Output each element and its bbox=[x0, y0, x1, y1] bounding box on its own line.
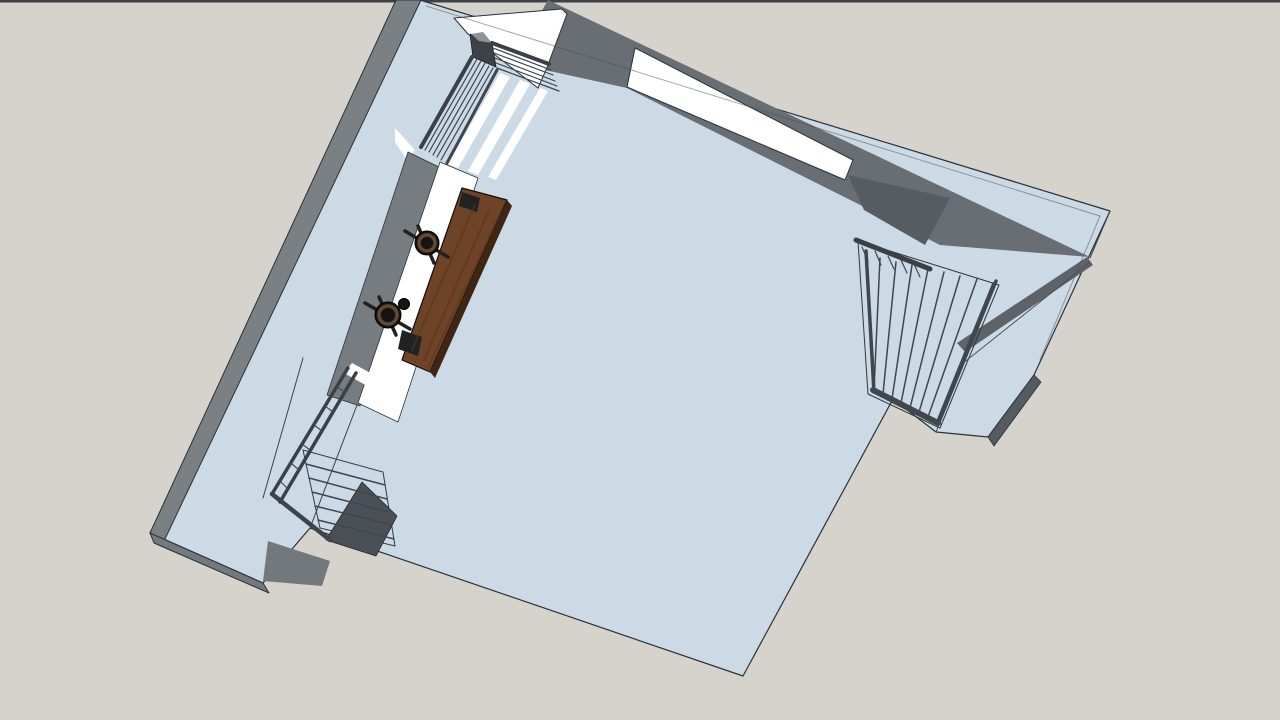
frame-top-bar bbox=[0, 0, 1280, 3]
model-viewer-stage bbox=[0, 0, 1280, 720]
3d-viewport[interactable] bbox=[0, 0, 1280, 720]
cup-on-counter bbox=[399, 299, 410, 310]
